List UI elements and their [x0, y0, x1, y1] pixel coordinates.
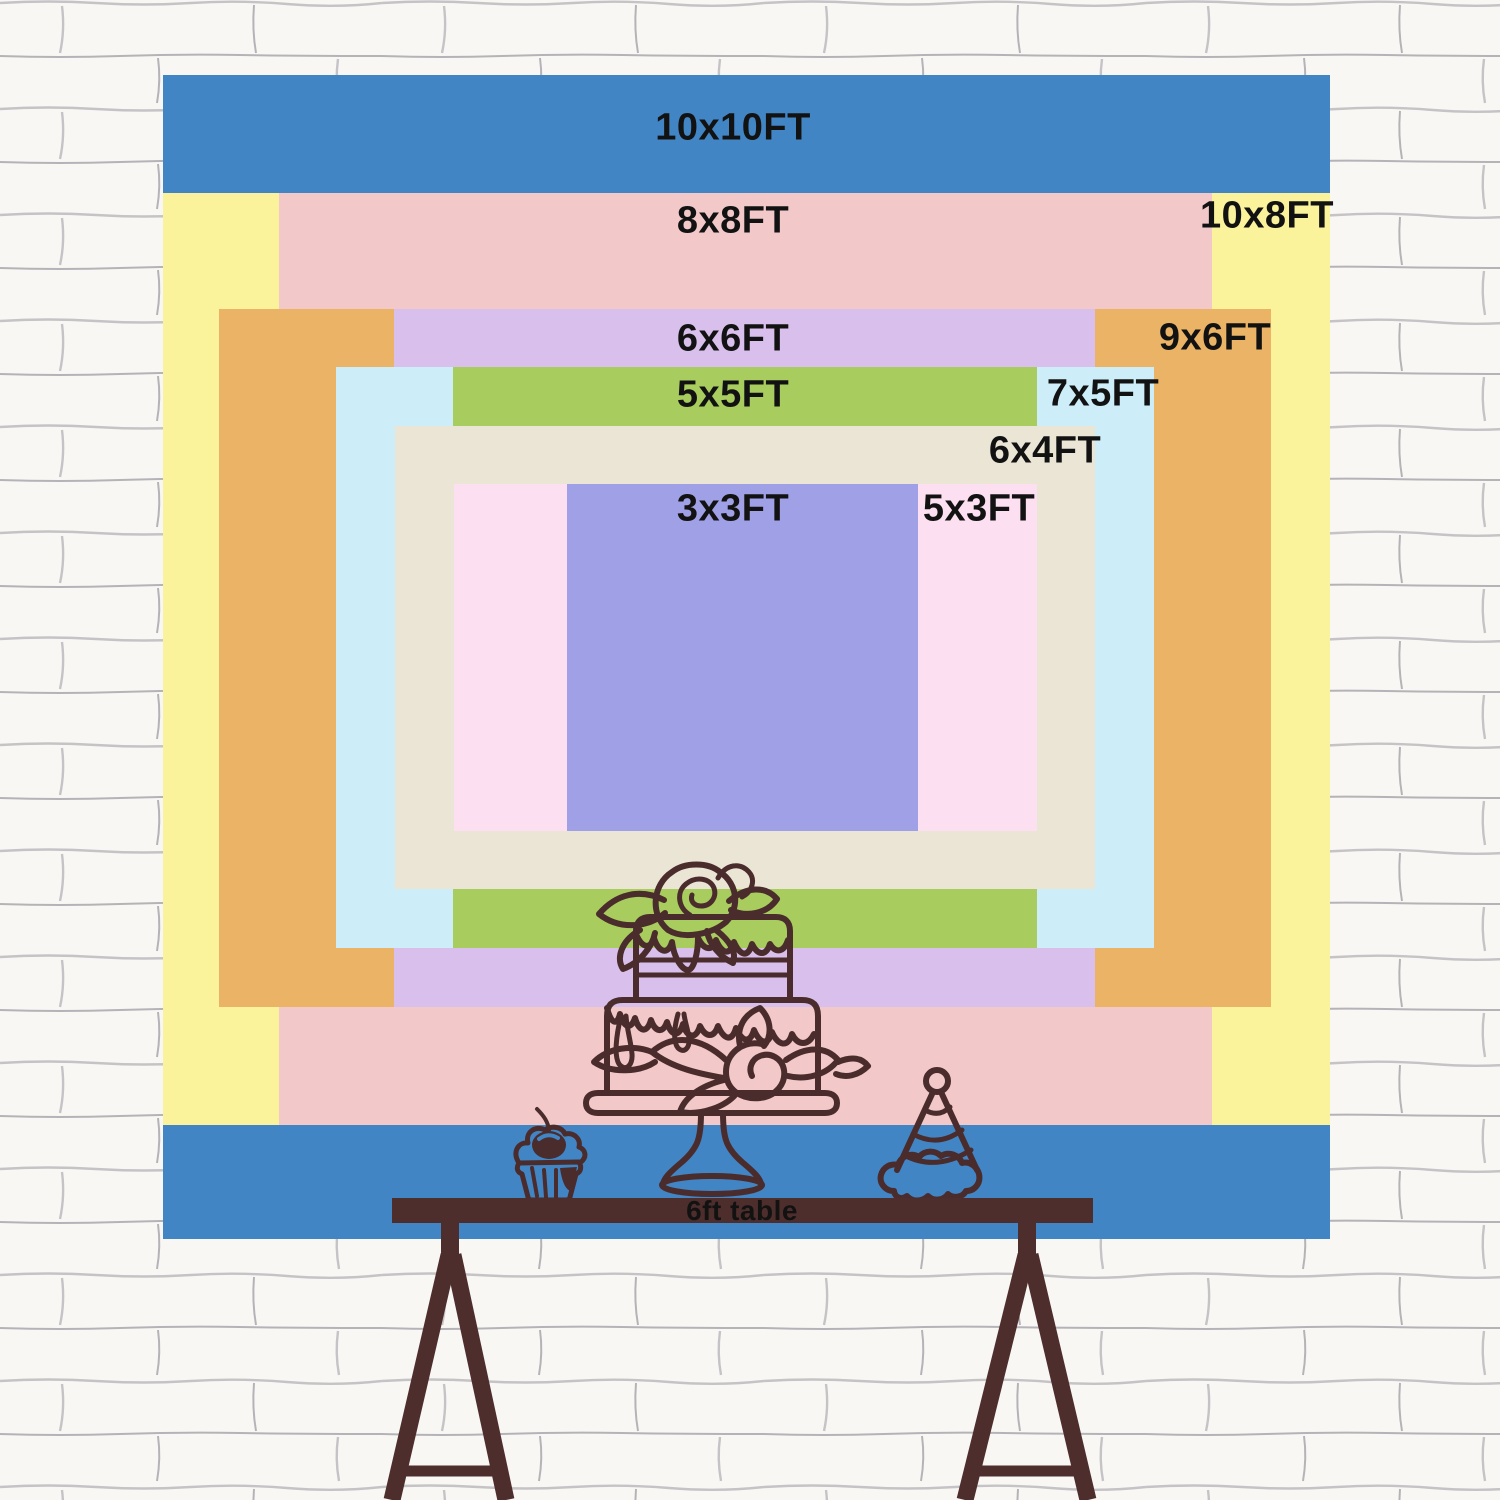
size-label-6x4: 6x4FT: [989, 430, 1101, 473]
backdrop-size-chart-poster: 10x10FT 8x8FT 10x8FT 6x6FT 9x6FT 5x5FT 7…: [0, 0, 1500, 1500]
size-label-10x8: 10x8FT: [1200, 195, 1334, 238]
size-label-8x8: 8x8FT: [677, 200, 789, 243]
table-size-label: 6ft table: [686, 1195, 798, 1227]
size-label-5x3: 5x3FT: [923, 488, 1035, 531]
size-label-9x6: 9x6FT: [1159, 317, 1271, 360]
size-label-7x5: 7x5FT: [1047, 373, 1159, 416]
backdrop-layer-3x3: [567, 484, 918, 831]
size-label-3x3: 3x3FT: [677, 488, 789, 531]
size-label-6x6: 6x6FT: [677, 318, 789, 361]
size-label-5x5: 5x5FT: [677, 374, 789, 417]
size-label-10x10: 10x10FT: [655, 107, 811, 150]
